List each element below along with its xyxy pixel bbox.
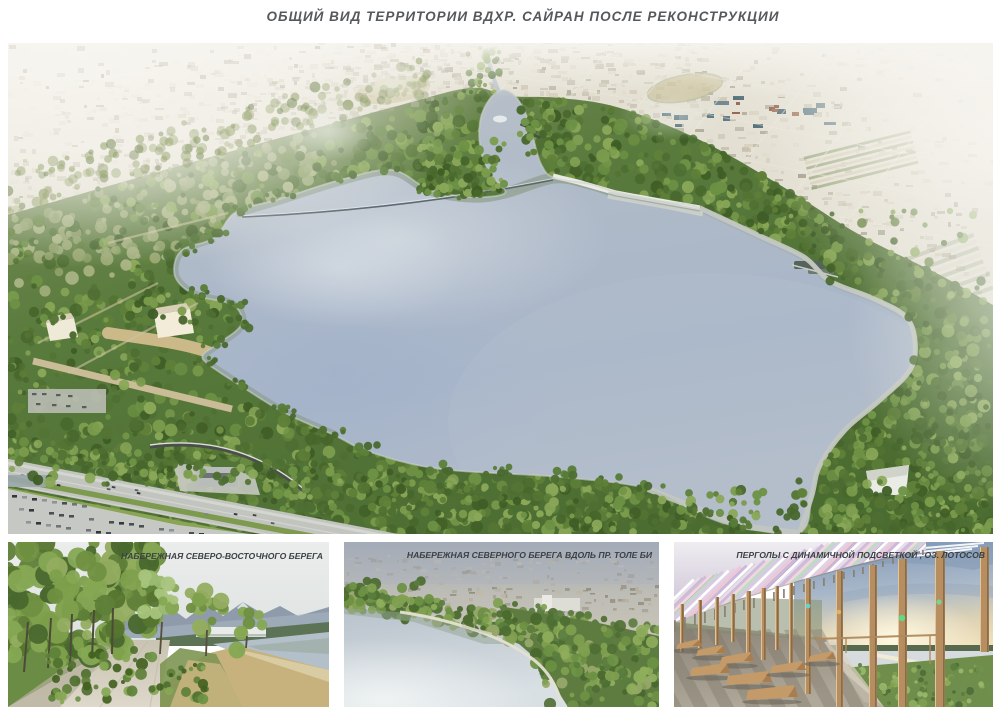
svg-text:НАБЕРЕЖНАЯ СЕВЕРО-ВОСТОЧНОГО Б: НАБЕРЕЖНАЯ СЕВЕРО-ВОСТОЧНОГО БЕРЕГА [121,551,323,561]
